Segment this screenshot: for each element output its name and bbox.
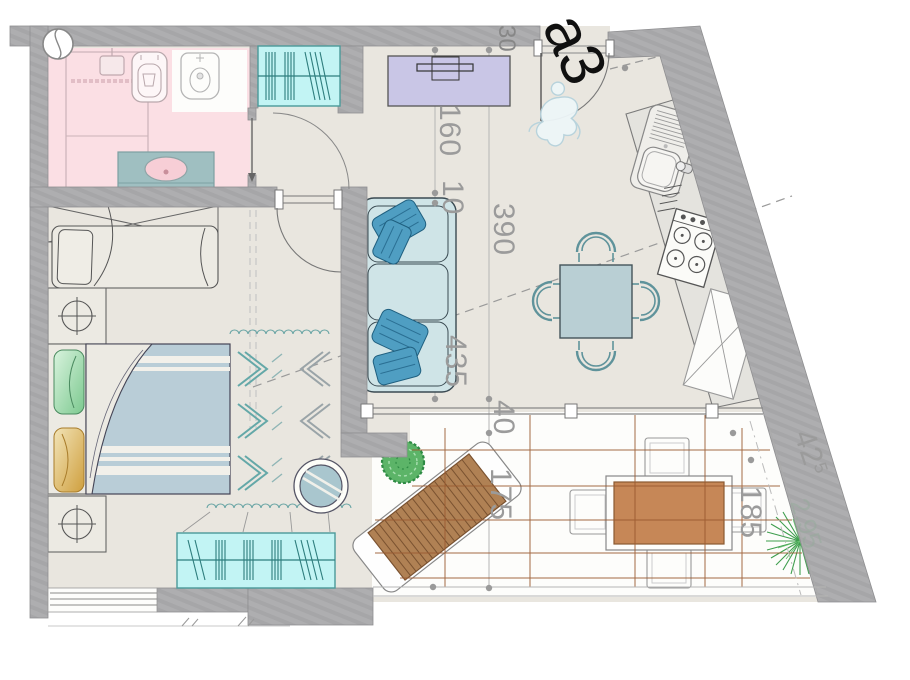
shower-head — [100, 56, 124, 75]
dim-label-390: 390 — [487, 203, 520, 256]
dim-label-40: 40 — [487, 400, 520, 435]
wall-top — [10, 26, 540, 46]
bidet — [181, 53, 219, 99]
ground-ticks — [182, 617, 254, 626]
nightstand-bottom — [48, 496, 106, 552]
wall-bottom-b — [248, 588, 373, 625]
floor-plan-canvas: a3 30 160 10 390 435 40 175 185 425 2.95 — [0, 0, 910, 680]
dim-label-160: 160 — [433, 104, 466, 157]
section-marker-icon — [43, 29, 73, 59]
vanity — [118, 152, 214, 190]
wall-radiator-jamb-right — [338, 46, 363, 113]
toilet — [132, 52, 167, 102]
vanity-sink — [145, 157, 187, 181]
wall-bedroom-living — [341, 187, 367, 433]
terrace-chair — [647, 548, 691, 588]
armchair — [294, 459, 348, 513]
dim-label-10: 10 — [436, 180, 469, 215]
double-bed — [48, 344, 230, 494]
radiator-hall — [258, 46, 340, 106]
dim-label-185: 185 — [734, 486, 767, 539]
floor-plan-screenshot: a3 30 160 10 390 435 40 175 185 425 2.95 — [0, 0, 910, 680]
terrace-table-top — [614, 482, 724, 544]
dim-label-175: 175 — [484, 468, 517, 521]
tv-unit — [388, 56, 510, 106]
dining-table — [560, 265, 632, 338]
wall-bath-bedroom — [30, 187, 277, 207]
terrace-chair — [570, 490, 610, 534]
wall-radiator-jamb-left — [250, 46, 258, 108]
radiator-bedroom — [177, 533, 335, 588]
tv-screen — [417, 64, 473, 71]
wall-bottom-a — [157, 588, 248, 612]
terrace-chair — [645, 438, 689, 478]
pillow-orange — [54, 428, 84, 492]
wall-left — [30, 26, 48, 618]
dim-label-435: 435 — [439, 335, 472, 388]
dim-label-30: 30 — [493, 25, 520, 52]
nightstand-top — [48, 288, 106, 344]
bedroom-window — [48, 588, 157, 612]
wall-terrace-foot — [341, 433, 407, 457]
